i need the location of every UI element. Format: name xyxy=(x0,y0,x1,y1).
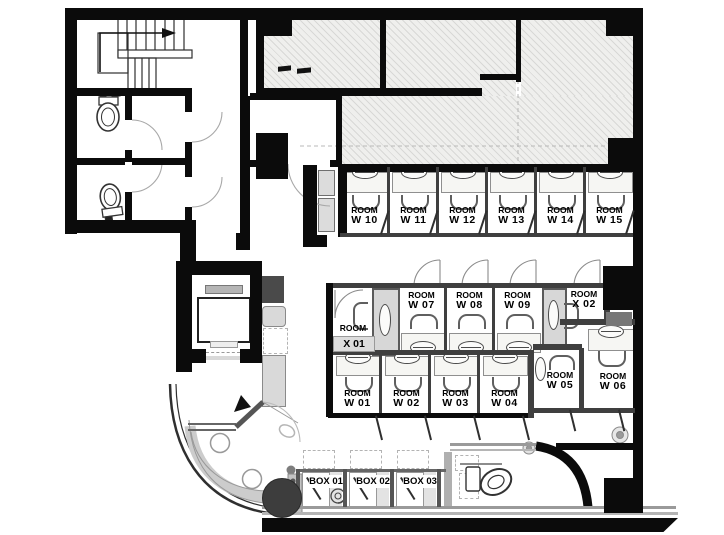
wall-segment xyxy=(125,150,132,162)
wall-segment xyxy=(534,167,537,237)
wall-fixture-marks xyxy=(278,65,311,73)
toilet-icon xyxy=(97,92,120,131)
elevator-threshold xyxy=(206,356,240,360)
room-label-w13: ROOMW 13 xyxy=(495,206,528,226)
wall-segment xyxy=(185,142,192,177)
accessible-toilet-icon xyxy=(460,464,516,500)
wall-segment xyxy=(492,288,495,353)
wall-segment xyxy=(604,478,643,512)
wall-segment xyxy=(303,165,317,243)
room-label-w07: ROOMW 07 xyxy=(405,291,438,311)
wall-segment xyxy=(185,96,192,112)
room-label-w03: ROOMW 03 xyxy=(439,389,472,409)
room-label-w11: ROOMW 11 xyxy=(397,206,430,226)
wall-segment xyxy=(516,10,521,82)
wall-segment xyxy=(633,8,643,446)
plant-icon xyxy=(612,427,628,443)
wall-segment xyxy=(65,88,192,96)
terrace-wall xyxy=(262,518,678,532)
wall-segment xyxy=(338,167,347,237)
wall-segment xyxy=(387,167,390,237)
wall-segment xyxy=(236,233,250,250)
curved-wall xyxy=(536,446,588,507)
wall-segment xyxy=(340,233,636,237)
wall-segment xyxy=(533,344,582,350)
wall-segment xyxy=(65,8,643,20)
room-label-w06: ROOMW 06 xyxy=(596,372,630,392)
room-label-w12: ROOMW 12 xyxy=(446,206,479,226)
entry-door-swing xyxy=(263,402,300,442)
room-label-w02: ROOMW 02 xyxy=(390,389,423,409)
wall-segment xyxy=(185,207,192,220)
wall-segment xyxy=(450,449,536,451)
wall-segment xyxy=(336,93,342,167)
wall-segment xyxy=(390,469,394,507)
wall-segment xyxy=(328,413,533,418)
door-opening xyxy=(185,112,192,142)
wall-segment xyxy=(477,353,480,413)
duct xyxy=(606,312,632,326)
wall-segment xyxy=(262,10,292,36)
door-opening xyxy=(185,177,192,207)
wall-segment xyxy=(326,283,333,417)
wall-segment xyxy=(343,469,347,507)
wall-segment xyxy=(65,8,77,234)
toilet-icon xyxy=(99,183,124,221)
room-label-x01-number: X 01 xyxy=(333,336,375,352)
wall-segment xyxy=(240,349,262,363)
wall-segment xyxy=(240,96,250,250)
wall-segment xyxy=(65,220,196,233)
entrance-arrow-icon xyxy=(234,395,251,412)
wall-segment xyxy=(436,167,439,237)
wall-segment xyxy=(583,167,586,237)
wall-segment xyxy=(250,275,262,349)
wall-segment xyxy=(340,164,643,172)
room-label-w14: ROOMW 14 xyxy=(544,206,577,226)
wall-segment xyxy=(296,469,446,472)
wall-segment xyxy=(303,235,327,247)
wall-segment xyxy=(444,288,447,353)
room-label-w09: ROOMW 09 xyxy=(501,291,534,311)
door-opening xyxy=(125,162,132,192)
wall-segment xyxy=(262,88,482,96)
room-label-w08: ROOMW 08 xyxy=(453,291,486,311)
room-label-w10: ROOMW 10 xyxy=(348,206,381,226)
chair-sketch-icon xyxy=(277,422,296,439)
wall-segment xyxy=(485,167,488,237)
wall-segment xyxy=(556,443,636,450)
room-label-x02: ROOMX 02 xyxy=(566,290,602,310)
entry-walls xyxy=(188,402,263,430)
curved-bench xyxy=(189,420,266,503)
wall-segment xyxy=(437,469,441,507)
wall-segment xyxy=(606,10,633,36)
round-table xyxy=(262,478,302,518)
floor-plan: ROOMW 10 ROOMW 11 ROOMW 12 ROOMW 13 ROOM… xyxy=(0,0,724,535)
wall-segment xyxy=(603,266,643,310)
booth-label-box02: BOX 02 xyxy=(356,475,390,488)
wall-segment xyxy=(480,74,518,80)
room-label-w05: ROOMW 05 xyxy=(543,371,577,391)
wall-segment xyxy=(326,283,610,288)
room-label-w15: ROOMW 15 xyxy=(593,206,626,226)
wall-segment xyxy=(380,10,386,96)
wall-segment xyxy=(428,353,431,413)
wall-segment xyxy=(256,133,288,179)
wall-segment xyxy=(125,96,132,120)
room-label-w01: ROOMW 01 xyxy=(341,389,374,409)
wall-segment xyxy=(240,20,248,96)
wall-segment xyxy=(176,349,206,363)
wall-segment xyxy=(579,348,584,410)
wall-segment xyxy=(125,192,132,220)
wall-segment xyxy=(379,353,382,413)
room-label-w04: ROOMW 04 xyxy=(488,389,521,409)
elevator-door-line xyxy=(206,352,240,353)
wall-segment xyxy=(450,443,536,446)
booth-label-box03: BOX 03 xyxy=(403,475,437,488)
stairs-icon xyxy=(98,18,192,92)
booth-label-box01: BOX 01 xyxy=(309,475,343,488)
room-label-x01: ROOM xyxy=(335,324,371,333)
door-opening xyxy=(125,120,132,150)
